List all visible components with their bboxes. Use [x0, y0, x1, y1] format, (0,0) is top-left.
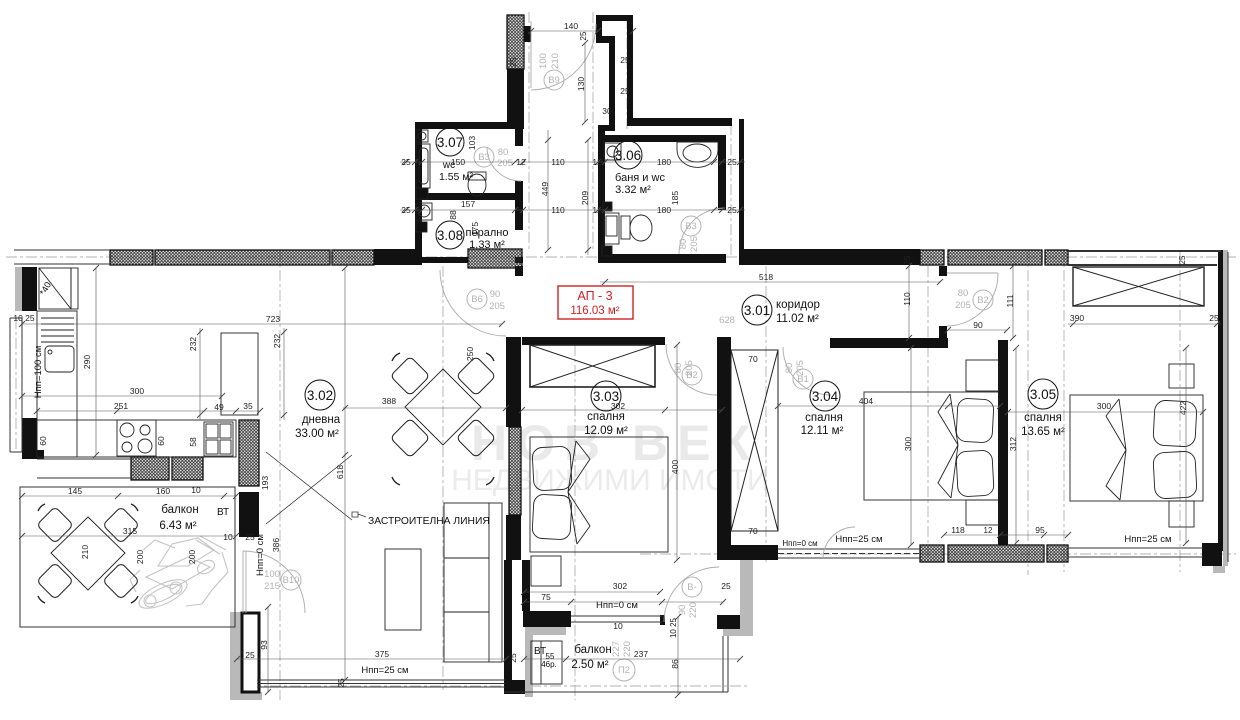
svg-text:Hпп=0 см: Hпп=0 см	[782, 539, 817, 548]
svg-text:12: 12	[593, 158, 602, 167]
svg-text:518: 518	[759, 272, 773, 282]
svg-text:25: 25	[245, 532, 255, 542]
svg-text:Hпп=0 см: Hпп=0 см	[255, 534, 266, 576]
svg-text:25: 25	[727, 205, 737, 215]
svg-text:205: 205	[497, 158, 513, 169]
svg-text:232: 232	[188, 337, 198, 351]
svg-text:180: 180	[657, 205, 671, 215]
svg-text:95: 95	[1035, 525, 1045, 535]
svg-text:спалня: спалня	[587, 411, 625, 423]
svg-text:232: 232	[272, 334, 282, 348]
svg-text:3.08: 3.08	[437, 228, 463, 243]
svg-text:400: 400	[670, 460, 680, 474]
svg-text:312: 312	[1008, 437, 1018, 451]
svg-text:628: 628	[719, 315, 735, 326]
svg-text:25: 25	[1209, 313, 1219, 323]
svg-text:25: 25	[401, 205, 411, 215]
svg-text:220: 220	[688, 602, 699, 618]
svg-text:70: 70	[748, 354, 758, 364]
svg-text:300: 300	[1097, 401, 1111, 411]
svg-text:90: 90	[490, 289, 501, 300]
svg-text:3.02: 3.02	[307, 388, 333, 403]
svg-text:12.11 м²: 12.11 м²	[801, 425, 844, 437]
svg-text:404: 404	[859, 396, 873, 406]
svg-text:60: 60	[38, 436, 48, 446]
svg-text:315: 315	[123, 526, 137, 536]
svg-text:3.01: 3.01	[744, 303, 770, 318]
svg-text:10: 10	[191, 485, 201, 495]
svg-text:ВТ: ВТ	[217, 507, 229, 518]
svg-text:220: 220	[622, 641, 633, 657]
svg-text:185: 185	[670, 191, 680, 205]
svg-text:70: 70	[748, 526, 758, 536]
svg-text:Hпп=100 см: Hпп=100 см	[33, 346, 44, 398]
svg-text:88: 88	[448, 210, 458, 220]
svg-text:100: 100	[538, 53, 549, 69]
svg-text:110: 110	[551, 205, 565, 215]
svg-text:33.00 м²: 33.00 м²	[295, 428, 339, 440]
svg-text:спалня: спалня	[1024, 412, 1062, 424]
svg-text:300: 300	[130, 386, 144, 396]
svg-text:B2: B2	[977, 295, 989, 306]
svg-text:спалня: спалня	[805, 412, 843, 424]
svg-text:157: 157	[461, 199, 475, 209]
svg-text:В-: В-	[687, 582, 697, 593]
svg-text:100: 100	[264, 569, 280, 580]
svg-text:193: 193	[260, 476, 270, 490]
svg-text:B9: B9	[548, 75, 560, 86]
svg-text:Hпп=0 см: Hпп=0 см	[596, 600, 638, 611]
svg-text:75: 75	[541, 592, 551, 602]
svg-text:12: 12	[516, 157, 526, 167]
svg-text:250: 250	[465, 347, 475, 361]
svg-text:25: 25	[508, 57, 518, 67]
svg-text:3.32 м²: 3.32 м²	[615, 184, 651, 196]
svg-text:209: 209	[580, 191, 590, 205]
svg-text:B3: B3	[685, 221, 697, 232]
svg-text:10 25: 10 25	[669, 617, 678, 638]
svg-text:10: 10	[613, 621, 623, 631]
svg-text:205: 205	[689, 236, 700, 252]
svg-text:25: 25	[620, 86, 630, 96]
svg-text:25: 25	[1178, 255, 1187, 264]
svg-text:58: 58	[188, 437, 198, 447]
svg-text:25: 25	[401, 157, 411, 167]
svg-text:3.05: 3.05	[1030, 387, 1056, 402]
svg-text:25: 25	[620, 55, 630, 65]
svg-text:дневна: дневна	[302, 414, 341, 426]
svg-text:386: 386	[271, 538, 281, 552]
svg-text:210: 210	[80, 545, 90, 559]
svg-text:93: 93	[259, 640, 269, 650]
svg-text:215: 215	[264, 581, 280, 592]
svg-text:балкон: балкон	[574, 644, 611, 656]
svg-text:110: 110	[902, 292, 912, 306]
svg-text:1.55 м²: 1.55 м²	[439, 171, 474, 183]
svg-text:116.03 м²: 116.03 м²	[570, 305, 619, 317]
svg-text:wc: wc	[442, 160, 455, 171]
svg-text:46р.: 46р.	[541, 660, 557, 669]
svg-text:90: 90	[973, 320, 983, 330]
svg-text:Hпп=25 см: Hпп=25 см	[1124, 534, 1171, 545]
svg-text:237: 237	[634, 649, 648, 659]
svg-text:25: 25	[336, 678, 346, 688]
svg-text:200: 200	[135, 550, 145, 564]
svg-text:110: 110	[551, 157, 565, 167]
svg-text:390: 390	[1070, 313, 1084, 323]
svg-text:35: 35	[243, 401, 253, 411]
svg-text:145: 145	[68, 486, 82, 496]
svg-text:13.65 м²: 13.65 м²	[1021, 426, 1065, 438]
svg-text:300: 300	[903, 437, 913, 451]
svg-text:12: 12	[984, 526, 993, 535]
svg-text:12.09 м²: 12.09 м²	[584, 425, 628, 437]
svg-text:B3: B3	[478, 152, 490, 163]
svg-text:B6: B6	[471, 294, 483, 305]
svg-text:449: 449	[540, 182, 550, 196]
svg-text:2.50 м²: 2.50 м²	[571, 659, 608, 671]
svg-text:3.03: 3.03	[593, 389, 619, 404]
svg-text:422: 422	[1178, 401, 1188, 415]
svg-text:60: 60	[156, 436, 166, 446]
svg-text:12: 12	[593, 206, 602, 215]
svg-text:375: 375	[375, 649, 389, 659]
svg-text:Hпп=25 см: Hпп=25 см	[835, 534, 882, 545]
svg-text:перално: перално	[466, 227, 509, 239]
svg-text:1.33 м²: 1.33 м²	[469, 239, 505, 251]
svg-text:80: 80	[498, 147, 509, 158]
svg-text:618: 618	[335, 465, 345, 479]
svg-text:АП - 3: АП - 3	[577, 289, 612, 303]
svg-text:25: 25	[903, 255, 912, 264]
svg-text:25: 25	[721, 581, 731, 591]
svg-text:25: 25	[245, 650, 255, 660]
svg-text:388: 388	[382, 396, 396, 406]
svg-text:25: 25	[579, 31, 588, 40]
svg-text:10: 10	[223, 532, 233, 542]
svg-text:25: 25	[727, 157, 737, 167]
svg-text:723: 723	[266, 314, 280, 324]
svg-text:302: 302	[613, 581, 627, 591]
svg-text:205: 205	[795, 360, 806, 376]
svg-text:10 25: 10 25	[13, 313, 35, 323]
svg-text:160: 160	[156, 486, 170, 496]
svg-text:111: 111	[1005, 294, 1015, 307]
svg-text:80: 80	[678, 239, 689, 250]
svg-text:290: 290	[82, 355, 92, 369]
svg-text:80: 80	[958, 288, 969, 299]
svg-text:3.07: 3.07	[437, 135, 463, 150]
svg-text:B10: B10	[283, 575, 300, 586]
svg-text:205: 205	[684, 360, 695, 376]
svg-text:3.04: 3.04	[812, 389, 839, 404]
svg-text:90: 90	[677, 605, 688, 616]
svg-text:80: 80	[784, 363, 795, 374]
svg-text:118: 118	[951, 525, 965, 535]
svg-text:25: 25	[508, 653, 518, 663]
svg-text:205: 205	[489, 301, 505, 312]
svg-text:205: 205	[955, 300, 971, 311]
svg-text:140: 140	[564, 21, 578, 31]
svg-text:П2: П2	[618, 665, 630, 676]
svg-text:коридор: коридор	[776, 299, 820, 311]
svg-text:251: 251	[114, 401, 128, 411]
svg-text:86: 86	[670, 659, 680, 669]
svg-text:180: 180	[657, 157, 671, 167]
svg-text:200: 200	[187, 550, 197, 564]
svg-text:49: 49	[214, 402, 224, 412]
svg-text:ЗАСТРОИТЕЛНА ЛИНИЯ: ЗАСТРОИТЕЛНА ЛИНИЯ	[368, 516, 490, 527]
svg-text:227: 227	[611, 641, 622, 657]
svg-text:3.06: 3.06	[615, 148, 641, 163]
svg-text:130: 130	[576, 77, 586, 91]
svg-text:балкон: балкон	[161, 504, 198, 516]
svg-text:30: 30	[602, 106, 612, 116]
svg-text:210: 210	[550, 53, 561, 69]
svg-text:Hпп=25 см: Hпп=25 см	[361, 665, 408, 676]
svg-text:11.02 м²: 11.02 м²	[776, 313, 819, 325]
svg-text:103: 103	[467, 136, 477, 150]
svg-text:баня и wc: баня и wc	[615, 172, 665, 184]
svg-text:ВТ: ВТ	[534, 646, 546, 657]
svg-text:6.43 м²: 6.43 м²	[159, 520, 196, 532]
svg-text:80: 80	[673, 363, 684, 374]
